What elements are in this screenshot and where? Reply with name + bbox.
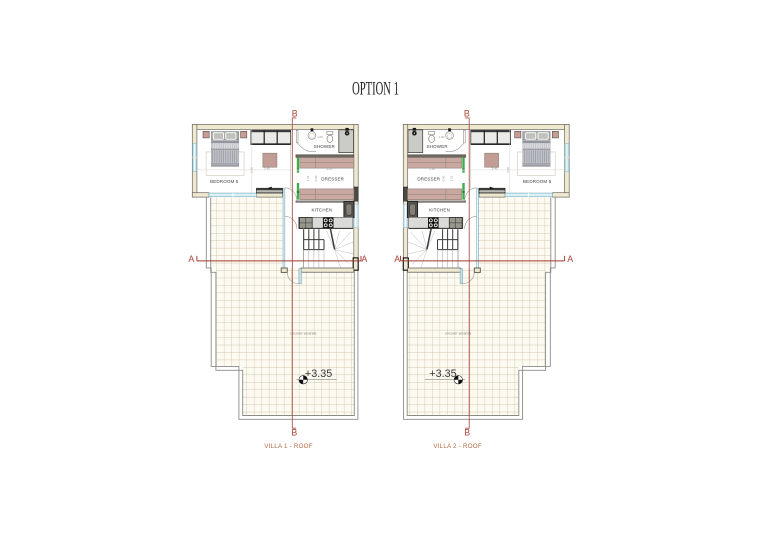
svg-text:KITCHEN: KITCHEN (429, 208, 450, 213)
svg-text:uncover veranda: uncover veranda (290, 331, 316, 335)
svg-text:+3.35: +3.35 (429, 368, 456, 380)
svg-text:A: A (567, 254, 573, 264)
svg-text:DRESSER: DRESSER (321, 176, 344, 181)
svg-text:B: B (292, 109, 298, 119)
svg-text:1.60: 1.60 (250, 167, 254, 173)
svg-text:uncover veranda: uncover veranda (445, 331, 471, 335)
svg-text:1.40: 1.40 (264, 166, 270, 170)
svg-text:2.52: 2.52 (450, 175, 454, 181)
svg-text:A: A (188, 254, 194, 264)
svg-text:A: A (394, 254, 400, 264)
svg-text:0.90: 0.90 (314, 175, 318, 181)
svg-text:1.00: 1.00 (439, 135, 445, 139)
svg-text:VILLA 2 - ROOF: VILLA 2 - ROOF (433, 443, 482, 450)
svg-text:5.40: 5.40 (492, 166, 498, 170)
svg-text:BEDROOM 5: BEDROOM 5 (210, 179, 239, 184)
svg-text:1.00: 1.00 (317, 135, 323, 139)
svg-text:KITCHEN: KITCHEN (311, 208, 332, 213)
svg-text:VILLA 1 - ROOF: VILLA 1 - ROOF (264, 443, 313, 450)
svg-text:B: B (464, 109, 470, 119)
svg-text:2.10: 2.10 (429, 167, 435, 171)
svg-text:OPTION 1: OPTION 1 (352, 79, 399, 100)
svg-text:3.60: 3.60 (506, 167, 510, 173)
svg-text:2.10: 2.10 (327, 167, 333, 171)
svg-text:+3.35: +3.35 (305, 368, 332, 380)
svg-text:BEDROOM 5: BEDROOM 5 (523, 179, 552, 184)
svg-text:A: A (361, 254, 367, 264)
svg-text:B: B (464, 428, 470, 438)
svg-text:0.90: 0.90 (442, 175, 446, 181)
svg-text:DRESSER: DRESSER (417, 176, 440, 181)
svg-text:SHOWER: SHOWER (314, 144, 336, 149)
svg-text:B: B (291, 428, 297, 438)
svg-text:SHOWER: SHOWER (427, 144, 449, 149)
svg-text:2.52: 2.52 (306, 175, 310, 181)
